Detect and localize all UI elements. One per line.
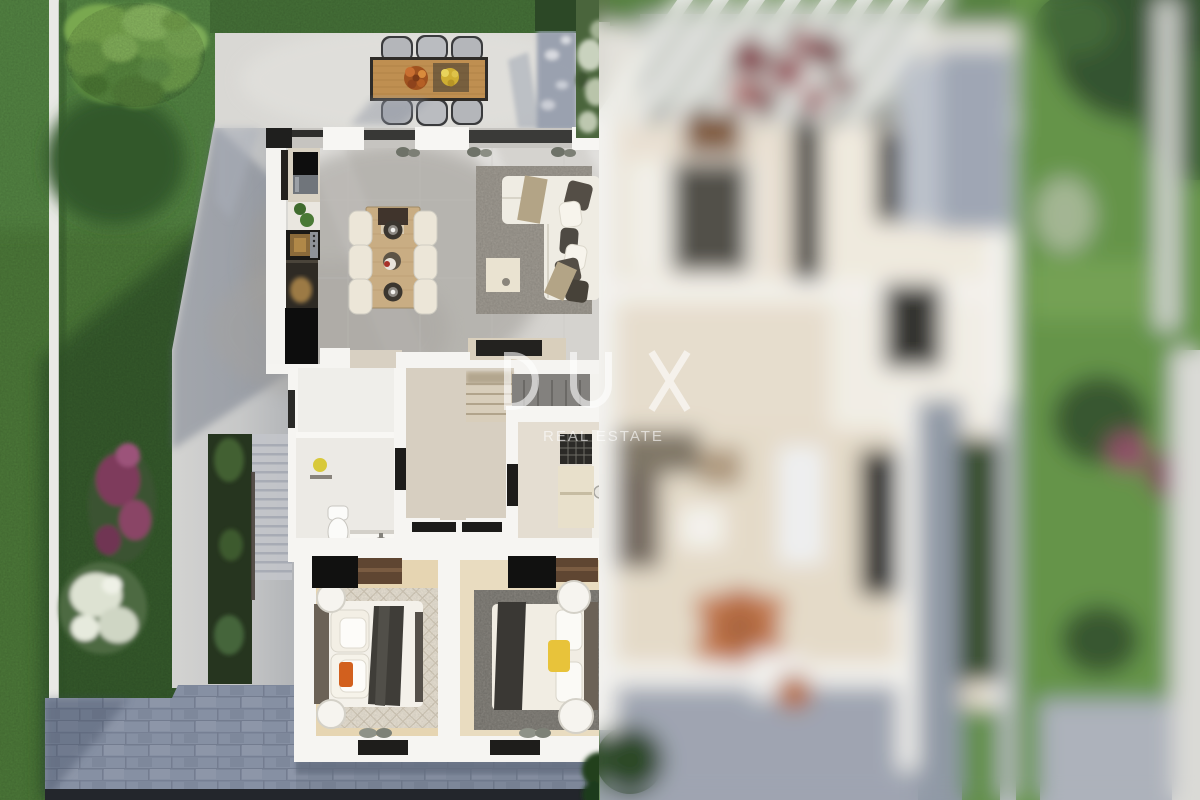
svg-text:REAL ESTATE: REAL ESTATE	[543, 428, 664, 445]
